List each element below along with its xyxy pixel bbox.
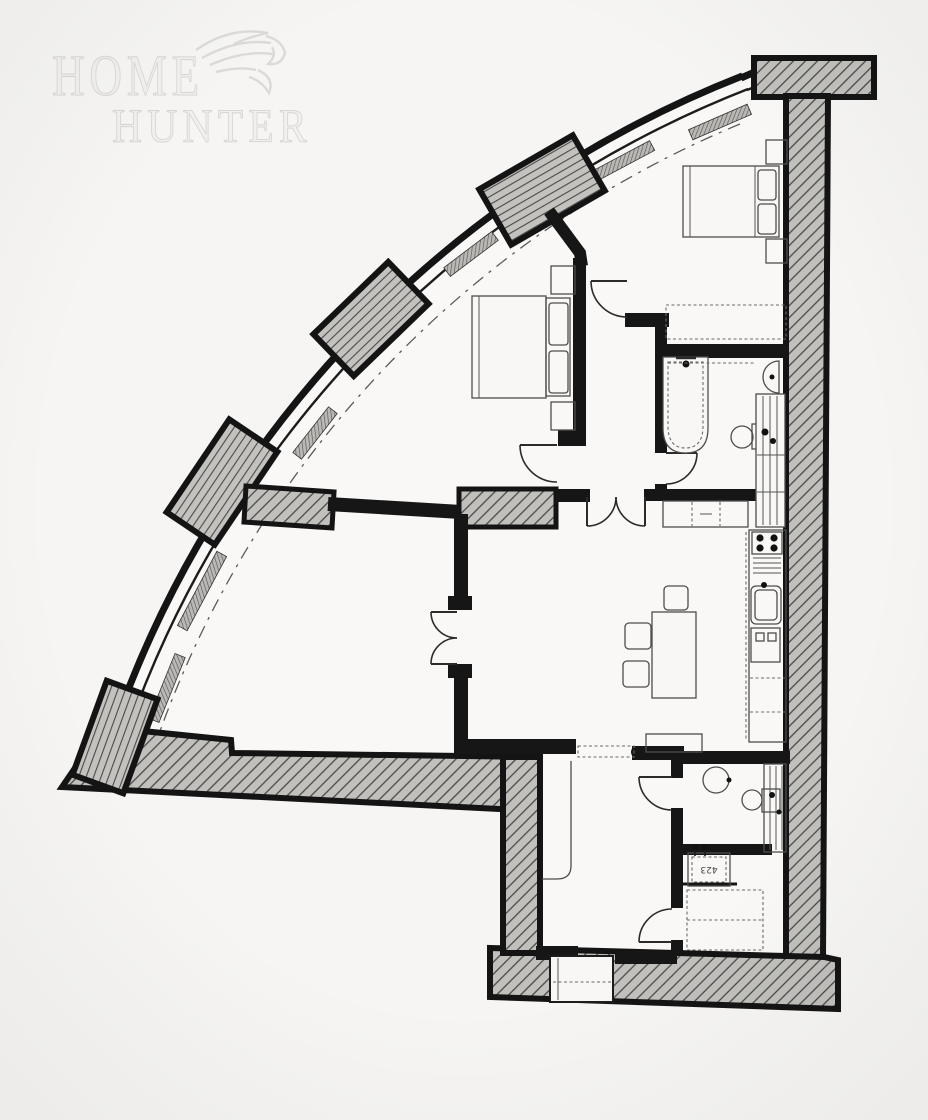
floor-plan-page: Home Hunter: [0, 0, 928, 1120]
floor-plan-drawing: Home Hunter: [0, 0, 928, 1120]
scan-vignette: [0, 0, 928, 1120]
